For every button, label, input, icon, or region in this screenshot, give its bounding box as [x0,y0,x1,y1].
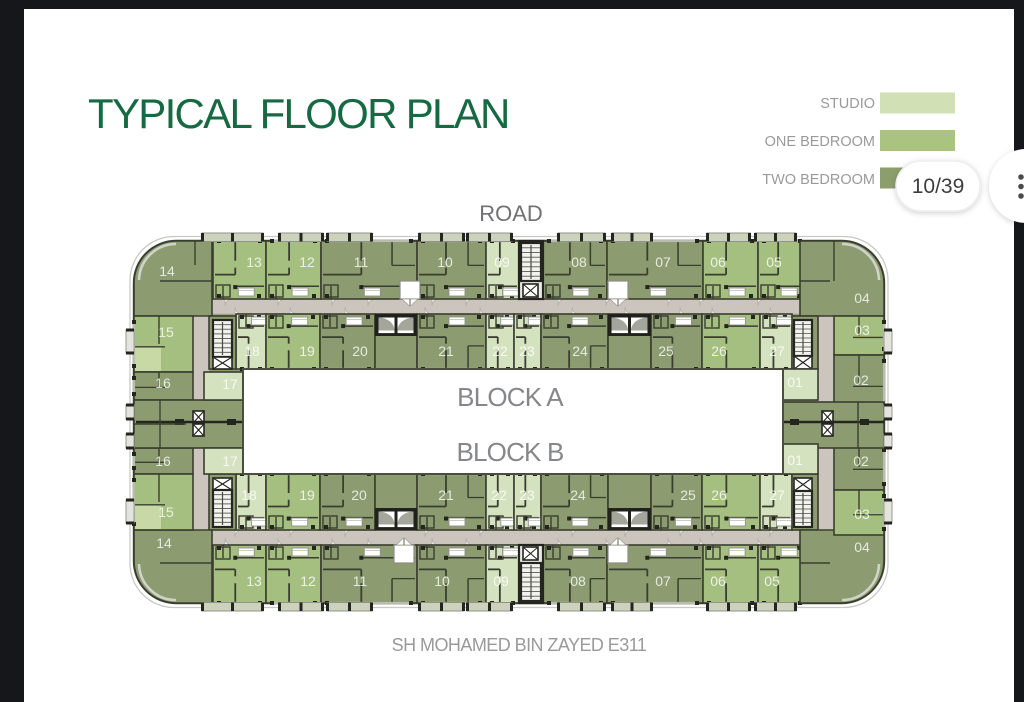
svg-text:21: 21 [438,343,454,359]
svg-text:13: 13 [246,254,262,270]
svg-text:09: 09 [493,573,509,589]
svg-text:01: 01 [787,452,803,468]
svg-text:26: 26 [711,487,727,503]
svg-text:15: 15 [158,324,174,340]
svg-text:22: 22 [491,487,507,503]
svg-text:25: 25 [680,487,696,503]
svg-text:01: 01 [787,374,803,390]
svg-text:24: 24 [572,343,588,359]
svg-text:27: 27 [769,343,785,359]
svg-text:16: 16 [155,375,171,391]
svg-text:17: 17 [222,376,238,392]
svg-text:21: 21 [438,487,454,503]
svg-text:ONE BEDROOM: ONE BEDROOM [765,134,875,150]
svg-text:12: 12 [299,254,315,270]
svg-text:06: 06 [710,573,726,589]
svg-text:20: 20 [352,343,368,359]
svg-text:20: 20 [351,487,367,503]
svg-text:11: 11 [353,573,368,589]
svg-text:26: 26 [711,343,727,359]
svg-text:27: 27 [769,487,785,503]
svg-text:06: 06 [710,254,726,270]
svg-text:STUDIO: STUDIO [820,96,875,112]
svg-text:12: 12 [300,573,316,589]
svg-text:08: 08 [570,573,586,589]
svg-text:08: 08 [571,254,587,270]
svg-text:13: 13 [246,573,262,589]
svg-text:16: 16 [155,453,171,469]
svg-text:17: 17 [222,453,238,469]
svg-text:14: 14 [159,263,175,279]
svg-text:19: 19 [299,343,315,359]
svg-text:23: 23 [519,487,535,503]
svg-text:05: 05 [766,254,782,270]
svg-text:ROAD: ROAD [479,201,543,226]
svg-text:TWO BEDROOM: TWO BEDROOM [762,172,875,188]
svg-text:TYPICAL FLOOR PLAN: TYPICAL FLOOR PLAN [88,90,509,137]
svg-text:04: 04 [854,290,870,306]
svg-text:02: 02 [853,453,869,469]
svg-text:25: 25 [658,343,674,359]
svg-text:07: 07 [655,573,671,589]
svg-text:23: 23 [519,343,535,359]
svg-text:03: 03 [854,322,870,338]
svg-text:10/39: 10/39 [912,175,965,198]
svg-text:11: 11 [354,254,369,270]
svg-text:SH MOHAMED BIN ZAYED E311: SH MOHAMED BIN ZAYED E311 [392,635,647,655]
svg-text:14: 14 [156,535,172,551]
svg-text:10: 10 [434,573,450,589]
svg-text:18: 18 [244,343,260,359]
svg-text:BLOCK A: BLOCK A [457,382,564,412]
svg-text:24: 24 [570,487,586,503]
svg-text:22: 22 [492,343,508,359]
svg-text:03: 03 [854,506,870,522]
svg-text:19: 19 [299,487,315,503]
svg-text:07: 07 [655,254,671,270]
svg-text:04: 04 [854,539,870,555]
svg-text:10: 10 [437,254,453,270]
svg-text:18: 18 [241,487,257,503]
svg-text:BLOCK B: BLOCK B [456,437,563,467]
svg-text:09: 09 [494,254,510,270]
svg-text:15: 15 [158,504,174,520]
svg-text:05: 05 [764,573,780,589]
svg-text:02: 02 [853,372,869,388]
